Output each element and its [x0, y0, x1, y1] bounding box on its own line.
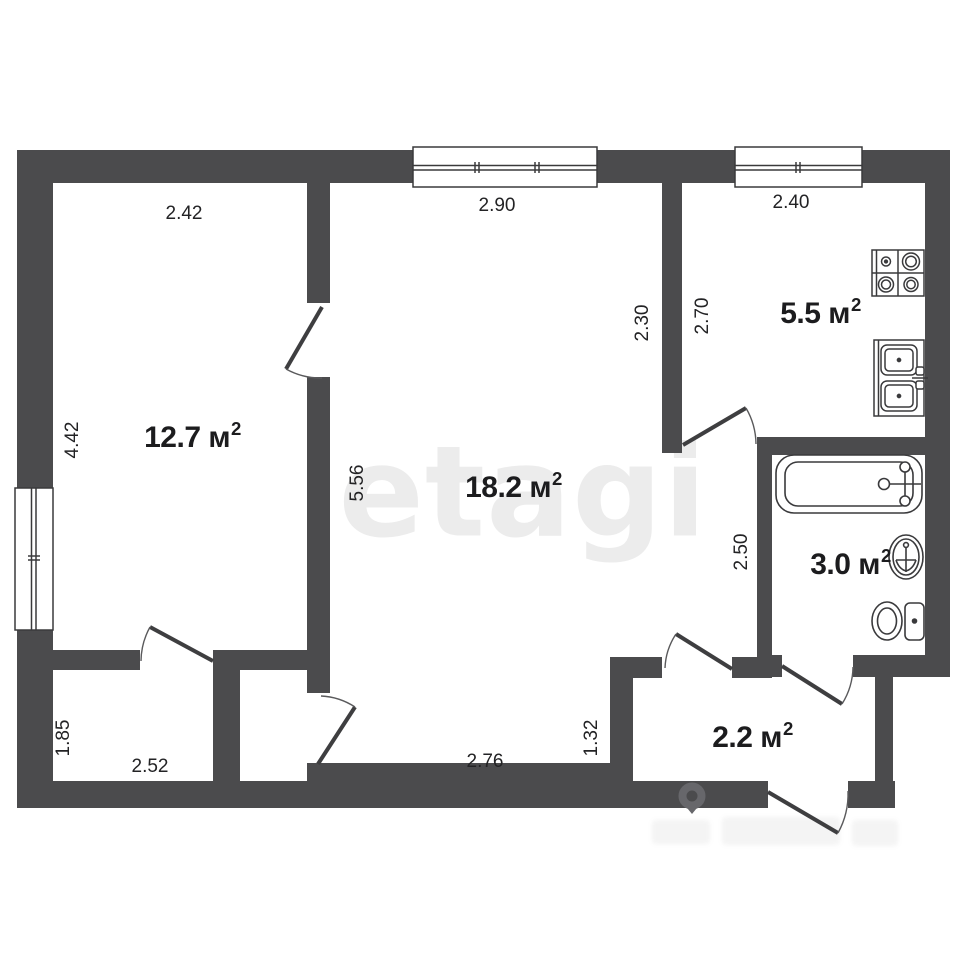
dim-corridor: 2.50 [731, 534, 753, 571]
living-room-window-icon [413, 147, 597, 187]
room-label-bedroom-sup: 2 [231, 418, 241, 439]
bathroom-door-icon [782, 666, 853, 704]
stove-icon [872, 250, 924, 296]
hallway-door-icon [665, 634, 732, 669]
entrance-door-icon [768, 791, 848, 833]
kitchen-sink-icon [874, 340, 928, 416]
room-label-hallway-text: 2.2 м [712, 721, 782, 754]
dim-closet-left: 1.85 [53, 720, 75, 757]
dim-bedroom-left: 4.42 [62, 422, 84, 459]
bedroom-window-icon [15, 488, 53, 630]
room-label-living-text: 18.2 м [465, 471, 551, 504]
dim-living-top: 2.90 [479, 195, 516, 217]
room-label-kitchen-sup: 2 [851, 294, 861, 315]
room-label-kitchen: 5.5 м2 [780, 295, 860, 331]
room-label-bathroom: 3.0 м2 [810, 546, 890, 582]
map-pin-icon [683, 787, 702, 815]
dim-bedroom-top: 2.42 [166, 203, 203, 225]
bathtub-icon [776, 455, 922, 513]
dim-closet-bottom: 2.52 [132, 756, 169, 778]
storage-door-icon [318, 696, 355, 764]
dim-kitchen-top: 2.40 [773, 192, 810, 214]
washbasin-icon [889, 535, 923, 579]
room-label-hallway-sup: 2 [783, 718, 793, 739]
room-label-hallway: 2.2 м2 [712, 719, 792, 755]
room-label-living-sup: 2 [552, 468, 562, 489]
room-label-living: 18.2 м2 [465, 469, 561, 505]
kitchen-door-icon [683, 408, 756, 445]
toilet-icon [872, 602, 924, 640]
closet-door-icon [141, 627, 213, 661]
dim-living-bottom: 2.76 [467, 751, 504, 773]
room-label-bedroom-text: 12.7 м [144, 421, 230, 454]
room-label-bathroom-sup: 2 [881, 545, 891, 566]
room-label-bathroom-text: 3.0 м [810, 548, 880, 581]
floor-plan: etagi [0, 0, 960, 960]
dim-hallway-left: 1.32 [581, 720, 603, 757]
dim-living-kitchen-wall: 2.30 [632, 305, 654, 342]
dim-kitchen-left: 2.70 [692, 298, 714, 335]
dim-living-left: 5.56 [347, 465, 369, 502]
room-label-bedroom: 12.7 м2 [144, 419, 240, 455]
bedroom-door-icon [286, 307, 322, 378]
room-label-kitchen-text: 5.5 м [780, 297, 850, 330]
kitchen-window-icon [735, 147, 862, 187]
